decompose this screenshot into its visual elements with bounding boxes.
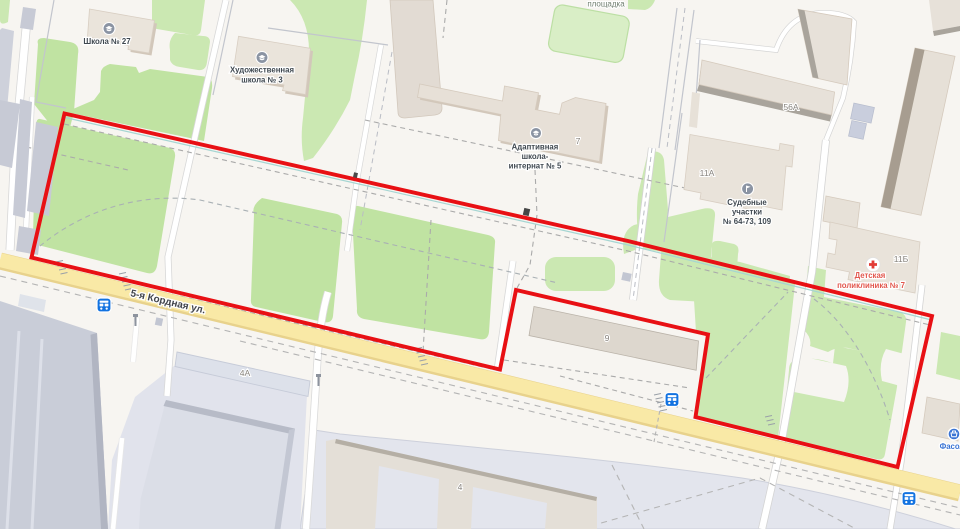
svg-text:Школа № 27: Школа № 27 — [83, 37, 130, 46]
svg-text:4А: 4А — [240, 368, 251, 378]
svg-text:интернат № 5: интернат № 5 — [509, 162, 562, 171]
svg-text:участки: участки — [732, 208, 762, 217]
svg-text:№ 64-73, 109: № 64-73, 109 — [723, 217, 772, 226]
svg-text:Фасол: Фасол — [940, 442, 960, 451]
svg-text:Художественная: Художественная — [230, 66, 294, 75]
svg-text:Адаптивная: Адаптивная — [512, 143, 559, 152]
svg-text:11А: 11А — [700, 168, 715, 178]
svg-text:11Б: 11Б — [894, 254, 909, 264]
svg-text:школа-: школа- — [522, 152, 549, 161]
svg-text:поликлиника № 7: поликлиника № 7 — [837, 281, 905, 290]
svg-text:площадка: площадка — [587, 0, 625, 9]
svg-text:школа № 3: школа № 3 — [241, 76, 283, 85]
svg-text:56А: 56А — [783, 102, 799, 112]
svg-text:7: 7 — [576, 136, 581, 146]
svg-text:4: 4 — [458, 482, 463, 492]
svg-text:9: 9 — [605, 333, 610, 343]
svg-text:Судебные: Судебные — [727, 198, 767, 207]
svg-text:Детская: Детская — [855, 271, 886, 280]
